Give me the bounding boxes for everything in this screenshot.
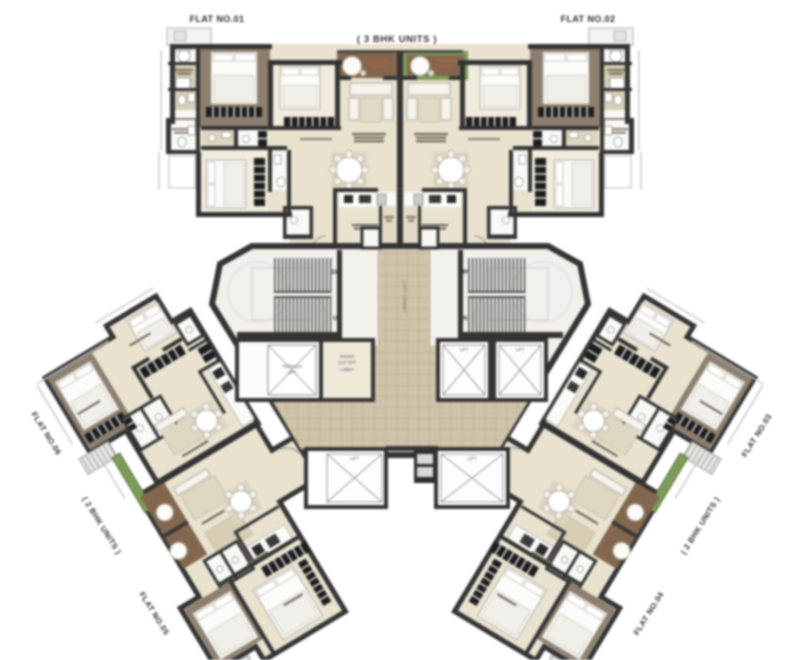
svg-text:LIFT: LIFT	[350, 456, 359, 461]
svg-text:LIFT: LIFT	[468, 456, 477, 461]
svg-text:LIFT: LIFT	[460, 347, 469, 352]
svg-text:LOBBY: LOBBY	[340, 367, 354, 372]
svg-text:TERRACE: TERRACE	[282, 364, 302, 369]
svg-text:FLAT NO.01: FLAT NO.01	[190, 14, 245, 24]
svg-text:( 3 BHK UNITS ): ( 3 BHK UNITS )	[357, 34, 437, 45]
svg-text:CUT OFF: CUT OFF	[338, 360, 357, 365]
svg-text:FLAT NO.02: FLAT NO.02	[561, 14, 616, 24]
svg-text:SMOKE: SMOKE	[339, 354, 354, 359]
svg-text:LIFT LOBBY: LIFT LOBBY	[402, 281, 407, 313]
svg-text:LIFT: LIFT	[288, 370, 297, 375]
svg-text:LIFT: LIFT	[516, 347, 525, 352]
